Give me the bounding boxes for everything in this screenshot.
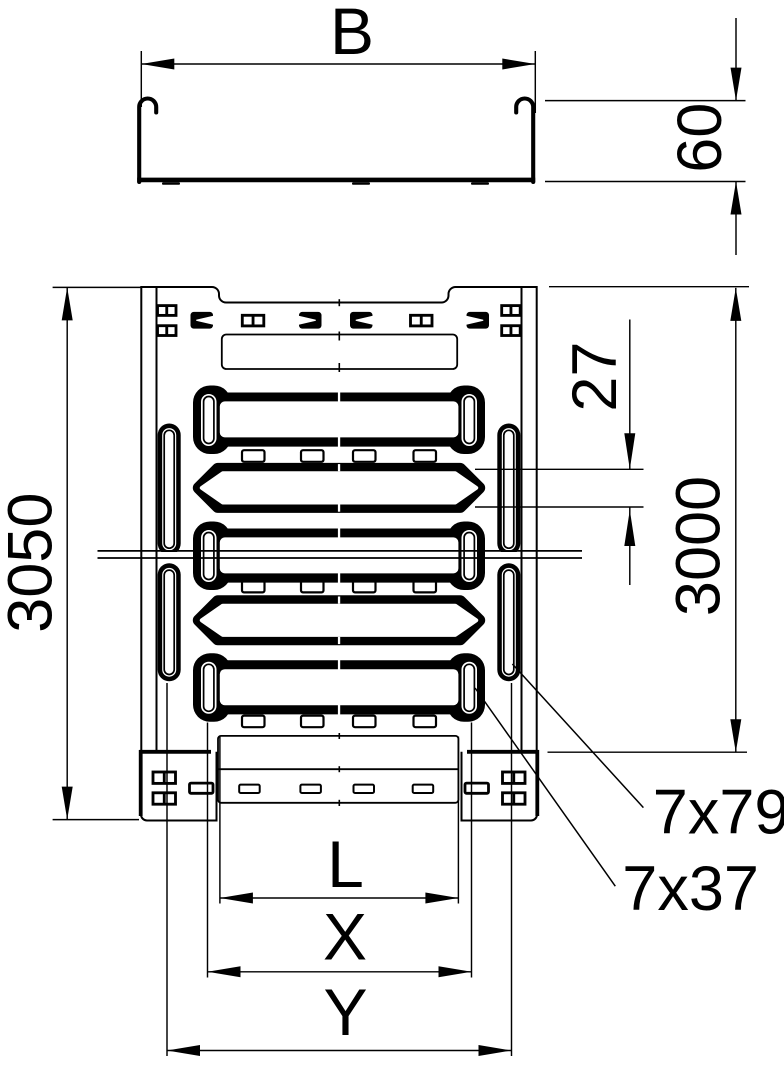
svg-text:3000: 3000 — [663, 476, 733, 616]
svg-text:L: L — [327, 827, 364, 901]
svg-text:3050: 3050 — [0, 493, 66, 633]
svg-text:27: 27 — [560, 342, 630, 412]
svg-text:B: B — [330, 0, 374, 68]
svg-text:Y: Y — [323, 975, 367, 1049]
svg-text:60: 60 — [665, 103, 735, 173]
svg-text:7x37: 7x37 — [622, 854, 759, 924]
svg-text:7x79: 7x79 — [653, 777, 784, 847]
svg-text:X: X — [323, 900, 367, 974]
